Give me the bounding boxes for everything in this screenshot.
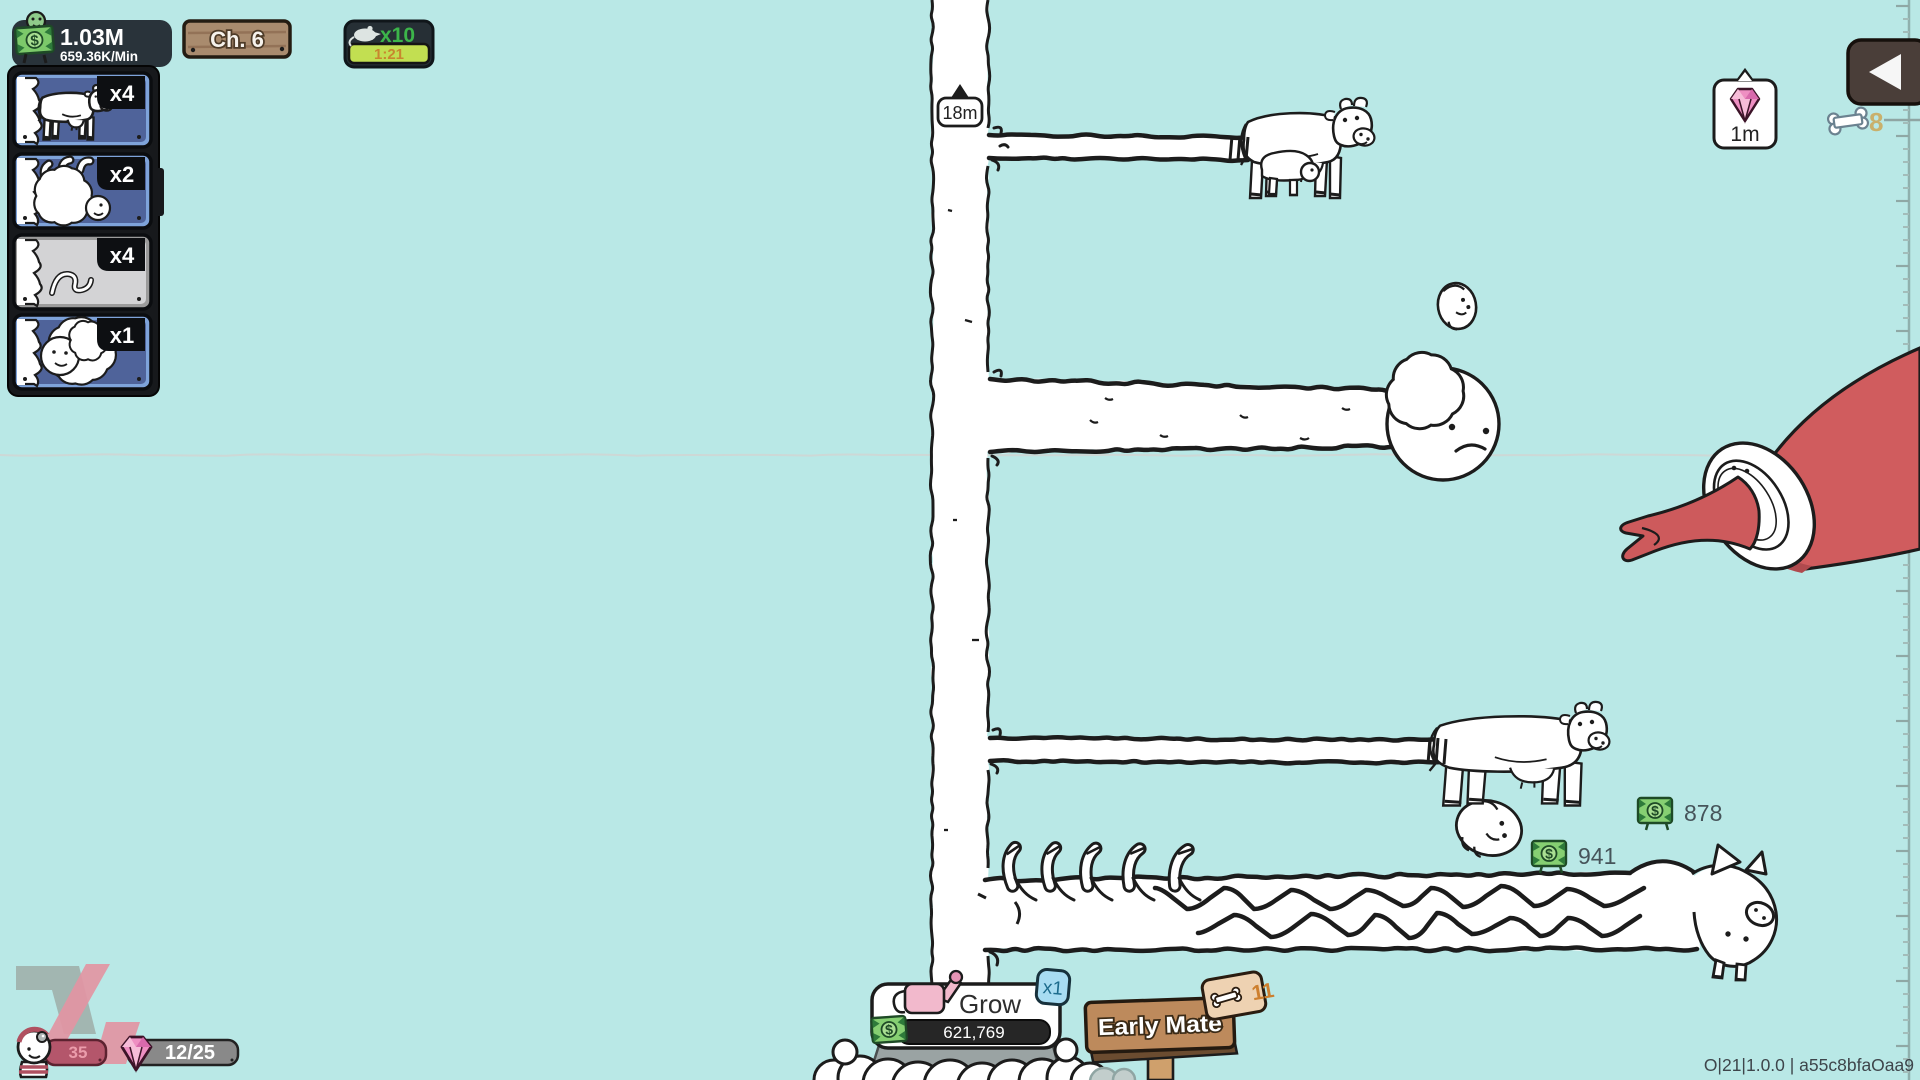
- svg-text:1.03M: 1.03M: [60, 24, 124, 50]
- svg-text:x4: x4: [110, 243, 135, 268]
- svg-text:Ch. 6: Ch. 6: [210, 27, 264, 52]
- svg-text:x10: x10: [380, 24, 415, 47]
- svg-text:35: 35: [69, 1043, 88, 1062]
- svg-text:941: 941: [1578, 843, 1616, 869]
- svg-text:18m: 18m: [942, 103, 977, 123]
- svg-text:1m: 1m: [1730, 123, 1759, 146]
- svg-text:Early Mate: Early Mate: [1098, 1010, 1223, 1040]
- svg-text:O|21|1.0.0 | a55c8bfaOaa9: O|21|1.0.0 | a55c8bfaOaa9: [1704, 1055, 1914, 1075]
- svg-text:621,769: 621,769: [943, 1023, 1004, 1042]
- svg-text:Grow: Grow: [959, 989, 1021, 1019]
- svg-text:878: 878: [1684, 800, 1722, 826]
- svg-text:x1: x1: [1042, 977, 1064, 1000]
- svg-text:x4: x4: [110, 81, 135, 106]
- svg-text:x1: x1: [110, 323, 134, 348]
- svg-text:1:21: 1:21: [374, 46, 404, 63]
- svg-text:x2: x2: [110, 162, 134, 187]
- svg-text:659.36K/Min: 659.36K/Min: [60, 49, 138, 64]
- svg-text:8: 8: [1869, 107, 1883, 137]
- svg-text:11: 11: [1250, 979, 1276, 1006]
- svg-text:12/25: 12/25: [165, 1042, 215, 1064]
